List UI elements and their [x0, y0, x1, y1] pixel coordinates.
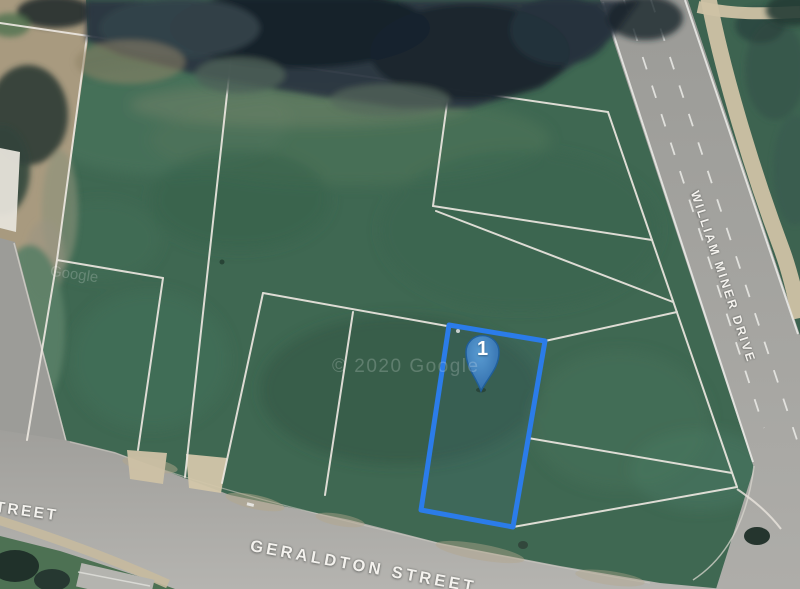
- map-canvas: [0, 0, 800, 589]
- aerial-map[interactable]: GERALDTON STREET WILLIAM MINER DRIVE STR…: [0, 0, 800, 589]
- driveway-apron: [186, 454, 227, 493]
- ground-speck: [220, 260, 225, 265]
- corner-bush: [744, 527, 770, 545]
- driveway-apron: [127, 450, 167, 484]
